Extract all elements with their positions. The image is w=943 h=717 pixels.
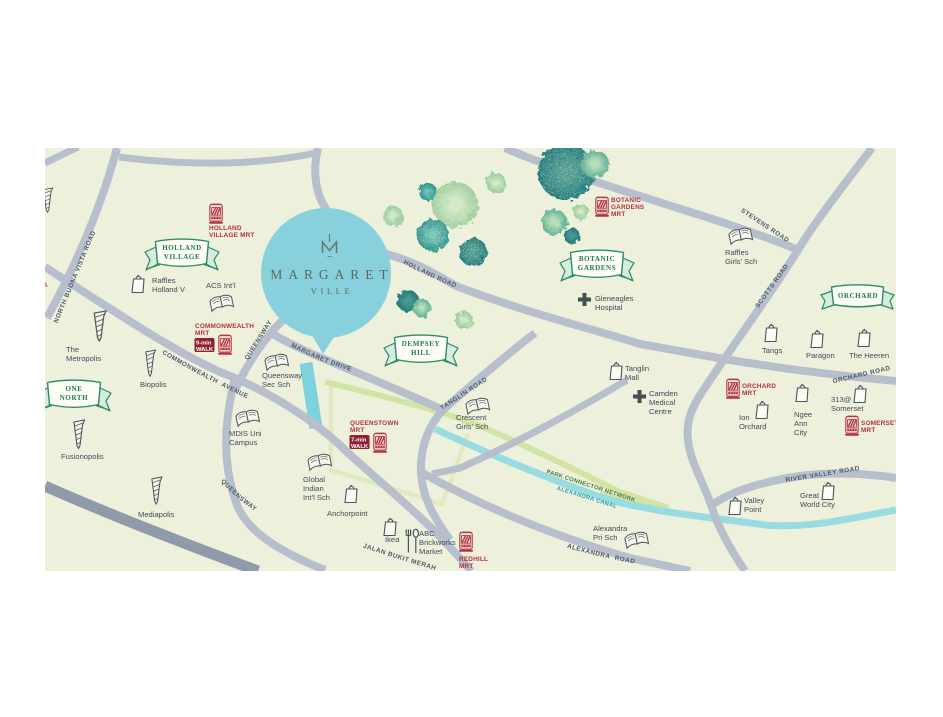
svg-text:Valley: Valley	[744, 496, 764, 505]
svg-text:Tangs: Tangs	[762, 346, 782, 355]
svg-text:Alexandra: Alexandra	[593, 524, 628, 533]
svg-text:Mediapolis: Mediapolis	[138, 510, 175, 519]
svg-text:Centre: Centre	[649, 407, 672, 416]
svg-text:Ikea: Ikea	[385, 535, 400, 544]
svg-text:Pri Sch: Pri Sch	[593, 533, 617, 542]
svg-text:MRT: MRT	[861, 427, 875, 434]
svg-text:Brickworks: Brickworks	[419, 538, 456, 547]
svg-text:Point: Point	[744, 505, 762, 514]
svg-text:HOLLAND: HOLLAND	[162, 244, 202, 252]
svg-text:MRT: MRT	[459, 563, 473, 570]
svg-text:WALK: WALK	[351, 444, 369, 450]
svg-text:The Heeren: The Heeren	[849, 351, 889, 360]
svg-text:HILL: HILL	[411, 349, 431, 357]
svg-text:Global: Global	[303, 475, 325, 484]
svg-text:7-min: 7-min	[351, 438, 367, 444]
svg-text:VILLAGE: VILLAGE	[164, 253, 201, 261]
svg-text:HOLLAND: HOLLAND	[209, 225, 242, 232]
svg-text:ORCHARD: ORCHARD	[742, 383, 776, 390]
svg-text:SOMERSET: SOMERSET	[861, 420, 896, 427]
svg-text:The: The	[66, 345, 79, 354]
svg-text:BOTANIC: BOTANIC	[579, 255, 615, 263]
svg-text:WALK: WALK	[196, 347, 214, 353]
svg-text:Crescent: Crescent	[456, 413, 487, 422]
svg-text:World City: World City	[800, 500, 835, 509]
svg-text:A: A	[45, 282, 48, 289]
svg-text:MRT: MRT	[611, 211, 625, 218]
svg-text:Hospital: Hospital	[595, 303, 623, 312]
svg-text:Sec Sch: Sec Sch	[262, 380, 290, 389]
svg-text:Anchorpoint: Anchorpoint	[327, 509, 368, 518]
svg-text:9-min: 9-min	[196, 341, 212, 347]
svg-text:Queensway: Queensway	[262, 371, 302, 380]
svg-text:Holland V: Holland V	[152, 285, 186, 294]
svg-text:Paragon: Paragon	[806, 351, 835, 360]
svg-text:Great: Great	[800, 491, 820, 500]
svg-text:Tanglin: Tanglin	[625, 364, 649, 373]
svg-text:Biopolis: Biopolis	[140, 380, 167, 389]
svg-text:Medical: Medical	[649, 398, 675, 407]
svg-text:Ngee: Ngee	[794, 410, 812, 419]
svg-text:VILLE: VILLE	[311, 286, 354, 296]
svg-text:Ann: Ann	[794, 419, 808, 428]
svg-text:Campus: Campus	[229, 438, 257, 447]
svg-text:Metropolis: Metropolis	[66, 354, 101, 363]
svg-text:Raffles: Raffles	[725, 248, 749, 257]
svg-text:COMMONWEALTH: COMMONWEALTH	[195, 323, 254, 330]
svg-text:Mall: Mall	[625, 373, 639, 382]
svg-text:Fusionopolis: Fusionopolis	[61, 452, 104, 461]
svg-text:MRT: MRT	[350, 427, 364, 434]
svg-text:Girls’ Sch: Girls’ Sch	[725, 257, 757, 266]
svg-text:Raffles: Raffles	[152, 276, 176, 285]
svg-text:ORCHARD: ORCHARD	[838, 292, 878, 300]
svg-text:Market: Market	[419, 547, 443, 556]
svg-text:Somerset: Somerset	[831, 404, 864, 413]
svg-text:VILLAGE MRT: VILLAGE MRT	[209, 232, 255, 239]
svg-text:MRT: MRT	[742, 390, 756, 397]
svg-text:GARDENS: GARDENS	[611, 204, 645, 211]
svg-text:MRT: MRT	[195, 330, 209, 337]
svg-text:NORTH: NORTH	[60, 394, 88, 402]
svg-text:Girls’ Sch: Girls’ Sch	[456, 422, 488, 431]
svg-text:QUEENSTOWN: QUEENSTOWN	[350, 420, 399, 427]
svg-text:313@: 313@	[831, 395, 852, 404]
svg-text:Indian: Indian	[303, 484, 324, 493]
svg-text:Camden: Camden	[649, 389, 678, 398]
svg-text:MDIS Uni: MDIS Uni	[229, 429, 262, 438]
svg-text:Orchard: Orchard	[739, 422, 766, 431]
svg-text:Gleneagles: Gleneagles	[595, 294, 634, 303]
svg-text:DEMPSEY: DEMPSEY	[402, 340, 440, 348]
svg-text:Ion: Ion	[739, 413, 750, 422]
svg-text:ABC: ABC	[419, 529, 435, 538]
svg-text:ONE: ONE	[66, 385, 83, 393]
svg-text:BOTANIC: BOTANIC	[611, 197, 641, 204]
svg-text:REDHILL: REDHILL	[459, 556, 488, 563]
svg-text:MARGARET: MARGARET	[270, 267, 393, 282]
svg-text:ACS Int’l: ACS Int’l	[206, 281, 236, 290]
svg-text:City: City	[794, 428, 807, 437]
svg-text:GARDENS: GARDENS	[578, 264, 616, 272]
svg-text:Int’l Sch: Int’l Sch	[303, 493, 330, 502]
